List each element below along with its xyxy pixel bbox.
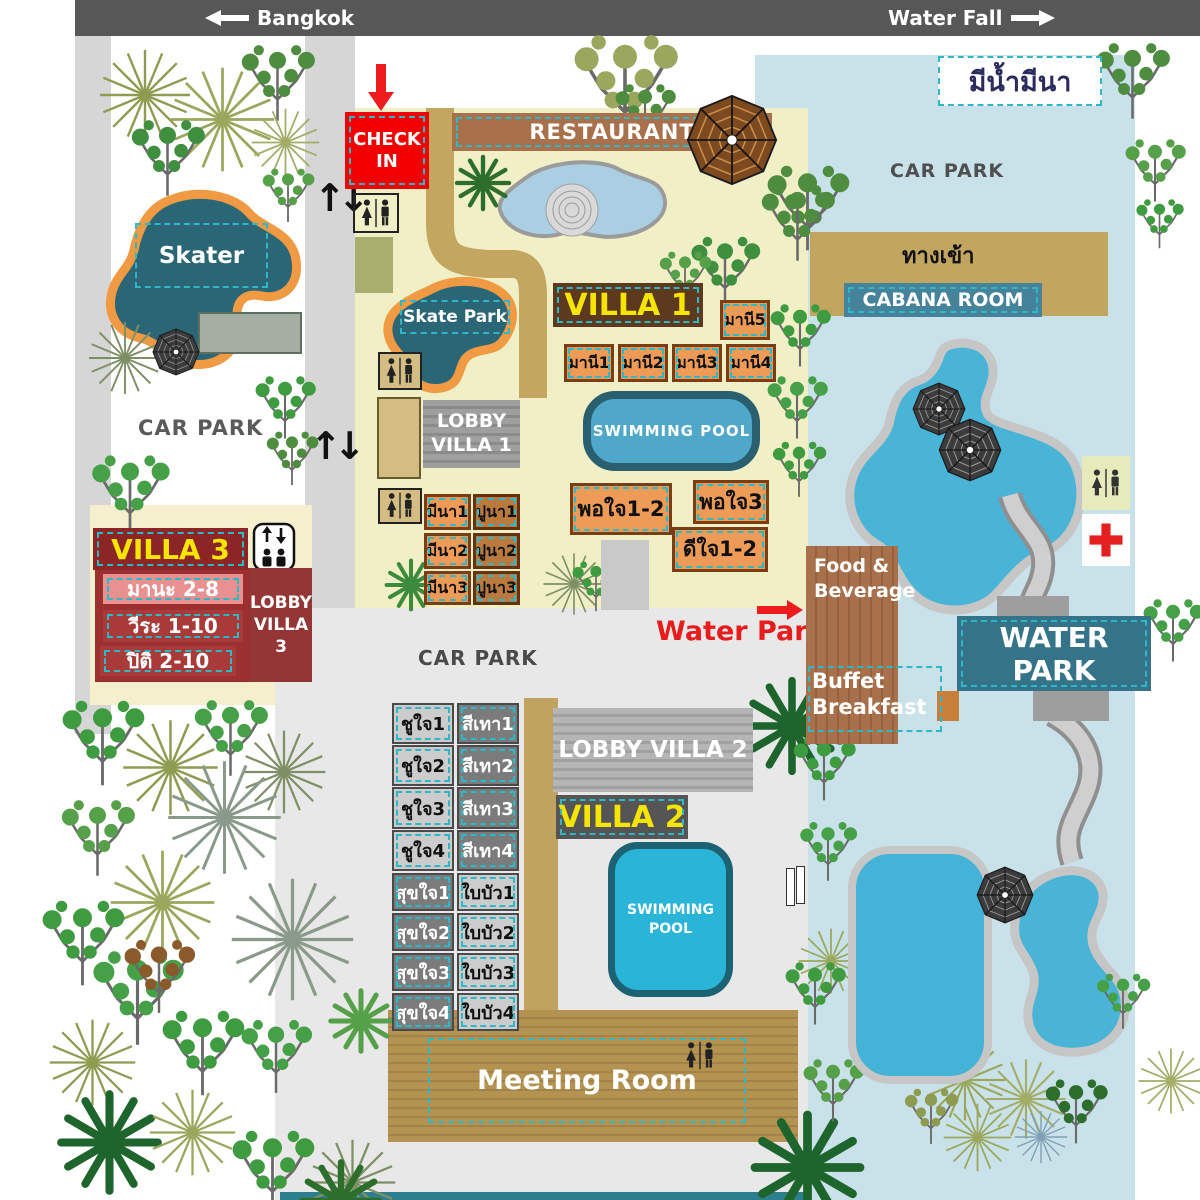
room-piti-2-10: ปิติ 2-10 bbox=[100, 646, 236, 676]
pool-label: SWIMMING POOL bbox=[593, 422, 751, 440]
villa3-lobby: LOBBY VILLA 3 bbox=[250, 568, 312, 682]
room-baibua2: ใบบัว2 bbox=[457, 913, 519, 951]
room-seetao4: สีเทา4 bbox=[457, 830, 519, 871]
room-seetao2: สีเทา2 bbox=[457, 745, 519, 786]
room-sukjai2: สุขใจ2 bbox=[392, 913, 454, 951]
room-label: ใบบัว4 bbox=[461, 998, 515, 1027]
skate-park-label-box: Skate Park bbox=[400, 300, 510, 334]
arrow-right-icon bbox=[1011, 10, 1055, 26]
room-baibua3: ใบบัว3 bbox=[457, 953, 519, 991]
villa2-sign: VILLA 2 bbox=[556, 795, 688, 839]
room-label: ปูนา3 bbox=[476, 576, 517, 601]
elevator-icon bbox=[252, 522, 296, 572]
car-park-north-label: CAR PARK bbox=[890, 160, 1004, 182]
umbrella-icon bbox=[152, 328, 200, 376]
room-label: มานี3 bbox=[676, 351, 718, 376]
room-label: มีนา3 bbox=[427, 576, 469, 601]
tree-icon bbox=[45, 1015, 140, 1110]
service-pad bbox=[601, 540, 649, 610]
water-park-banner-label: WATER PARK bbox=[957, 621, 1151, 687]
tree-icon bbox=[118, 935, 200, 1017]
villa1-lobby: LOBBY VILLA 1 bbox=[423, 400, 520, 468]
food-beverage-label: Food & Beverage bbox=[814, 554, 894, 603]
lobby-label: LOBBY VILLA 3 bbox=[250, 592, 312, 658]
room-porjai-3: พอใจ3 bbox=[693, 480, 769, 524]
villa1-annex bbox=[377, 397, 421, 479]
room-sukjai4: สุขใจ4 bbox=[392, 993, 454, 1031]
room-sukjai1: สุขใจ1 bbox=[392, 873, 454, 911]
restroom-icon bbox=[356, 197, 396, 230]
room-meena3: มีนา3 bbox=[424, 571, 471, 605]
room-label: มีนา1 bbox=[427, 500, 469, 525]
room-poona2: ปูนา2 bbox=[473, 533, 520, 569]
restroom-sign bbox=[353, 193, 399, 233]
check-in-arrow-icon bbox=[368, 64, 394, 112]
header-bangkok-direction: Bangkok bbox=[205, 6, 354, 30]
room-label: ปูนา1 bbox=[476, 500, 517, 525]
room-label: ปิติ 2-10 bbox=[127, 645, 210, 677]
water-park-pool-south-rect bbox=[848, 846, 992, 1084]
pavilion-umbrella-icon bbox=[686, 94, 778, 186]
restroom-sign bbox=[1082, 456, 1130, 510]
tree-icon bbox=[1135, 1045, 1200, 1117]
room-manee4: มานี4 bbox=[726, 344, 776, 382]
restroom-icon bbox=[680, 1040, 720, 1072]
room-label: ใบบัว1 bbox=[461, 878, 515, 907]
tree-icon bbox=[145, 1085, 240, 1180]
tree-icon bbox=[155, 1005, 250, 1100]
room-baibua1: ใบบัว1 bbox=[457, 873, 519, 911]
pool-label: SWIMMING POOL bbox=[626, 901, 716, 939]
resort-map: Bangkok Water Fall มีน้ำมีนา ↑↓ ↑↓ CHECK… bbox=[0, 0, 1200, 1200]
restroom-icon bbox=[381, 491, 419, 521]
water-park-pointer-label: Water Park bbox=[656, 616, 826, 647]
room-label: สีเทา1 bbox=[462, 709, 514, 738]
shrub-bed bbox=[355, 237, 393, 293]
room-weera-1-10: วีระ 1-10 bbox=[103, 610, 243, 642]
palm-tree-icon bbox=[162, 755, 287, 880]
room-label: สุขใจ1 bbox=[395, 878, 450, 907]
skater-label-box: Skater bbox=[135, 223, 268, 288]
room-label: พอใจ1-2 bbox=[578, 493, 665, 526]
cabana-room: CABANA ROOM bbox=[844, 283, 1042, 317]
slide-tower-lower bbox=[1033, 691, 1109, 721]
room-label: มานี4 bbox=[730, 351, 772, 376]
room-mana-2-8: มานะ 2-8 bbox=[103, 574, 243, 604]
restaurant-label: RESTAURANT bbox=[529, 120, 694, 144]
room-label: มานะ 2-8 bbox=[127, 573, 219, 605]
villa2-lobby: LOBBY VILLA 2 bbox=[553, 708, 753, 792]
room-poona1: ปูนา1 bbox=[473, 494, 520, 530]
arrow-left-icon bbox=[205, 10, 249, 26]
tree-icon bbox=[55, 795, 140, 880]
villa3-sign: VILLA 3 bbox=[93, 528, 248, 570]
room-label: สีเทา2 bbox=[462, 751, 514, 780]
buffet-breakfast-outline bbox=[808, 666, 942, 732]
room-manee3: มานี3 bbox=[672, 344, 722, 382]
room-seetao1: สีเทา1 bbox=[457, 703, 519, 744]
room-label: ใบบัว3 bbox=[461, 958, 515, 987]
room-manee5: มานี5 bbox=[720, 300, 770, 340]
first-aid-cross-icon bbox=[1084, 518, 1128, 562]
room-manee1: มานี1 bbox=[564, 344, 614, 382]
villa3-title: VILLA 3 bbox=[111, 533, 230, 566]
room-label: มานี5 bbox=[724, 308, 766, 333]
room-meena1: มีนา1 bbox=[424, 494, 471, 530]
pool-gate bbox=[786, 866, 806, 906]
room-deejai-1-2: ดีใจ1-2 bbox=[672, 527, 768, 572]
tree-icon bbox=[1132, 196, 1187, 251]
bangkok-label: Bangkok bbox=[257, 6, 354, 30]
skate-ramp bbox=[198, 312, 302, 354]
room-label: มีนา2 bbox=[427, 539, 469, 564]
restroom-sign bbox=[378, 352, 422, 390]
room-choojai3: ชูใจ3 bbox=[392, 787, 454, 829]
waterfall-label: Water Fall bbox=[888, 6, 1003, 30]
room-label: วีระ 1-10 bbox=[128, 610, 218, 642]
lobby-label: LOBBY VILLA 1 bbox=[423, 410, 520, 458]
lobby-label: LOBBY VILLA 2 bbox=[558, 737, 747, 763]
room-label: ดีใจ1-2 bbox=[683, 533, 757, 566]
entrance-road-label: ทางเข้า bbox=[902, 238, 975, 273]
room-label: ใบบัว2 bbox=[461, 918, 515, 947]
restroom-sign bbox=[378, 488, 422, 524]
room-label: ปูนา2 bbox=[476, 539, 517, 564]
umbrella-icon bbox=[938, 418, 1002, 482]
tree-icon bbox=[118, 715, 223, 820]
meeting-room-label: Meeting Room bbox=[477, 1065, 697, 1096]
villa1-sign: VILLA 1 bbox=[553, 283, 703, 327]
check-in-desk: CHECK IN bbox=[345, 112, 429, 189]
room-label: สุขใจ2 bbox=[395, 918, 450, 947]
umbrella-icon bbox=[976, 866, 1034, 924]
room-label: ชูใจ1 bbox=[401, 709, 445, 738]
two-way-arrows-icon: ↑↓ bbox=[310, 424, 358, 468]
restroom-icon bbox=[381, 356, 419, 387]
villa2-swimming-pool: SWIMMING POOL bbox=[608, 842, 733, 997]
car-park-central-label: CAR PARK bbox=[418, 646, 538, 670]
skate-park-label: Skate Park bbox=[403, 307, 507, 327]
room-meena2: มีนา2 bbox=[424, 533, 471, 569]
slide-tower-upper bbox=[997, 596, 1069, 618]
room-choojai4: ชูใจ4 bbox=[392, 830, 454, 871]
south-teal-strip bbox=[280, 1192, 810, 1200]
header-waterfall-direction: Water Fall bbox=[888, 6, 1055, 30]
water-park-banner: WATER PARK bbox=[957, 616, 1151, 691]
tree-icon bbox=[165, 62, 280, 177]
tree-icon bbox=[85, 945, 190, 1050]
resort-name-label: มีน้ำมีนา bbox=[969, 60, 1072, 103]
room-label: มานี2 bbox=[622, 351, 664, 376]
first-aid-station bbox=[1082, 514, 1130, 566]
room-label: ชูใจ3 bbox=[401, 794, 445, 823]
villa1-swimming-pool: SWIMMING POOL bbox=[583, 391, 760, 471]
room-label: สีเทา4 bbox=[462, 836, 514, 865]
room-label: สุขใจ3 bbox=[395, 958, 450, 987]
room-label: สีเทา3 bbox=[462, 794, 514, 823]
villa1-title: VILLA 1 bbox=[564, 288, 691, 323]
tree-icon bbox=[125, 115, 210, 200]
room-choojai2: ชูใจ2 bbox=[392, 745, 454, 786]
room-label: พอใจ3 bbox=[699, 486, 763, 519]
cabana-room-label: CABANA ROOM bbox=[863, 289, 1024, 311]
room-baibua4: ใบบัว4 bbox=[457, 993, 519, 1031]
skater-label: Skater bbox=[159, 243, 244, 269]
room-seetao3: สีเทา3 bbox=[457, 787, 519, 829]
room-label: ชูใจ2 bbox=[401, 751, 445, 780]
room-label: มานี1 bbox=[568, 351, 610, 376]
room-sukjai3: สุขใจ3 bbox=[392, 953, 454, 991]
tree-icon bbox=[188, 695, 273, 780]
villa2-title: VILLA 2 bbox=[558, 800, 685, 835]
car-park-west-label: CAR PARK bbox=[138, 416, 263, 440]
resort-name-sign: มีน้ำมีนา bbox=[938, 56, 1102, 106]
check-in-label: CHECK IN bbox=[349, 129, 425, 172]
tree-icon bbox=[35, 895, 130, 990]
room-label: ชูใจ4 bbox=[401, 836, 445, 865]
room-manee2: มานี2 bbox=[618, 344, 668, 382]
room-choojai1: ชูใจ1 bbox=[392, 703, 454, 744]
room-poona3: ปูนา3 bbox=[473, 571, 520, 605]
tree-icon bbox=[105, 845, 220, 960]
palm-tree-icon bbox=[52, 1085, 167, 1200]
room-porjai-1-2: พอใจ1-2 bbox=[570, 483, 672, 535]
restroom-icon bbox=[1086, 467, 1126, 500]
room-label: สุขใจ4 bbox=[395, 998, 450, 1027]
